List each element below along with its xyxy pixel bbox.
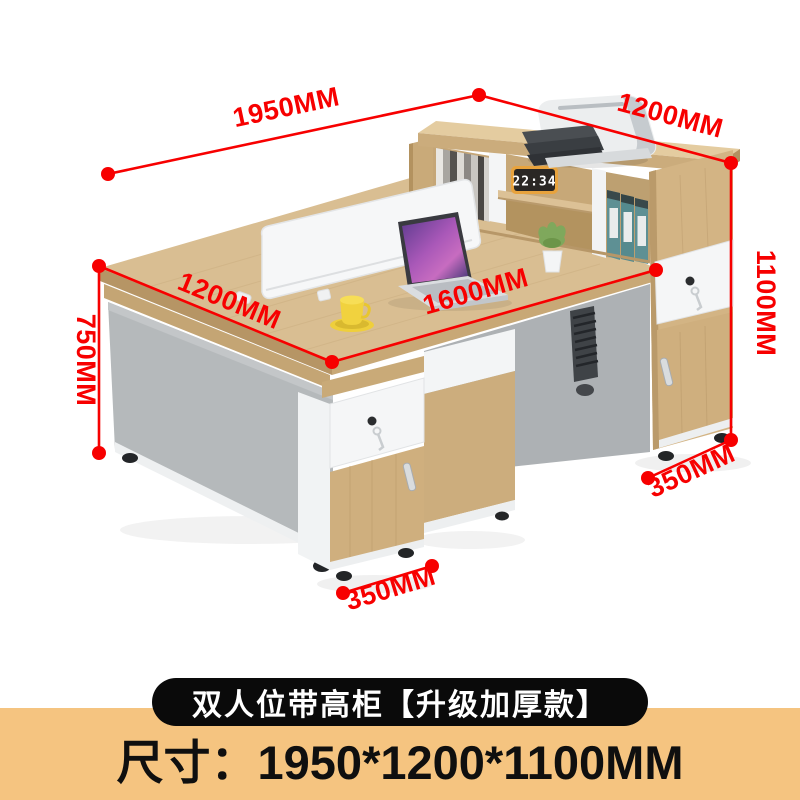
product-card: 22:34 <box>0 0 800 800</box>
hutch-divider-2 <box>592 168 606 258</box>
desk-foot <box>122 453 138 463</box>
size-line: 尺寸：1950*1200*1100MM <box>0 736 800 790</box>
dim-label-left-cabinet-depth: 350MM <box>342 561 439 617</box>
tall-cabinet <box>649 150 733 461</box>
pedestal-foot <box>336 571 352 581</box>
far-pedestal <box>424 329 515 533</box>
pedestal-foot <box>398 548 414 558</box>
file-binders <box>607 190 648 264</box>
dim-label-desk-height: 750MM <box>71 314 101 407</box>
product-banner: 双人位带高柜【升级加厚款】 <box>152 678 648 726</box>
digital-clock: 22:34 <box>511 166 558 194</box>
dim-label-total-width: 1950MM <box>230 81 342 133</box>
hutch-divider-1 <box>489 152 506 224</box>
cabinet-foot <box>658 451 674 461</box>
dim-label-total-height: 1100MM <box>751 250 781 357</box>
clock-time: 22:34 <box>512 175 556 190</box>
banner-text: 双人位带高柜【升级加厚款】 <box>192 680 608 724</box>
